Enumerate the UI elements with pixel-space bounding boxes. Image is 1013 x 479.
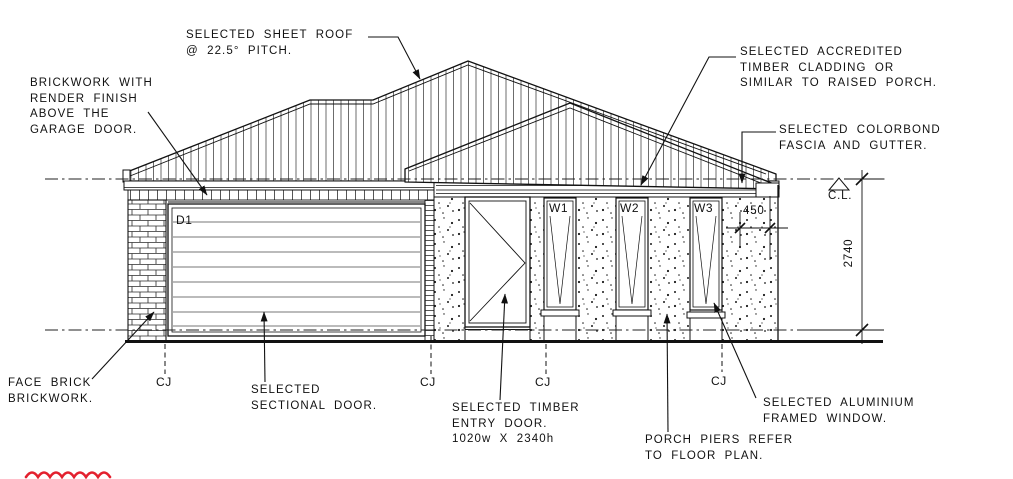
note-sheet-roof: SELECTED SHEET ROOF @ 22.5° PITCH. xyxy=(186,28,353,59)
note-sectional-door: SELECTED SECTIONAL DOOR. xyxy=(251,383,377,414)
leader-face-brick xyxy=(92,312,154,379)
note-entry-door: SELECTED TIMBER ENTRY DOOR. 1020w X 2340… xyxy=(452,401,580,448)
ceiling-level-marker xyxy=(829,178,849,190)
note-aluminium-window: SELECTED ALUMINIUM FRAMED WINDOW. xyxy=(763,396,915,427)
window-w1 xyxy=(541,198,579,316)
note-face-brick: FACE BRICK BRICKWORK. xyxy=(8,376,93,407)
dim-450-text: 450 xyxy=(743,205,765,217)
brick-corner-return xyxy=(425,200,434,341)
timber-entry-door xyxy=(465,197,530,330)
cj-label-3: CJ xyxy=(535,375,551,389)
window-w2 xyxy=(613,198,651,316)
leader-sheet-roof xyxy=(368,37,420,79)
tag-window-w2: W2 xyxy=(620,201,639,215)
garage-sectional-door xyxy=(168,204,425,336)
garage-fascia-band xyxy=(124,181,438,190)
note-timber-cladding: SELECTED ACCREDITED TIMBER CLADDING OR S… xyxy=(740,45,937,92)
note-colorbond: SELECTED COLORBOND FASCIA AND GUTTER. xyxy=(779,123,941,154)
gutter-corner xyxy=(756,183,779,197)
cj-label-1: CJ xyxy=(156,375,172,389)
tag-window-w3: W3 xyxy=(694,201,713,215)
note-brick-render: BRICKWORK WITH RENDER FINISH ABOVE THE G… xyxy=(30,76,153,138)
elevation-drawing: SELECTED SHEET ROOF @ 22.5° PITCH. BRICK… xyxy=(0,0,1013,479)
windows xyxy=(541,198,725,318)
render-brick-course xyxy=(128,190,437,202)
tag-garage-door-d1: D1 xyxy=(176,213,193,227)
ceiling-level-text: C.L. xyxy=(828,190,852,202)
tag-window-w1: W1 xyxy=(549,201,568,215)
window-w3 xyxy=(687,198,725,318)
red-markup-squiggle xyxy=(26,473,110,478)
cj-label-4: CJ xyxy=(711,374,727,388)
note-porch-piers: PORCH PIERS REFER TO FLOOR PLAN. xyxy=(645,433,793,464)
cj-label-2: CJ xyxy=(420,375,436,389)
dim-2740-text: 2740 xyxy=(843,230,855,276)
